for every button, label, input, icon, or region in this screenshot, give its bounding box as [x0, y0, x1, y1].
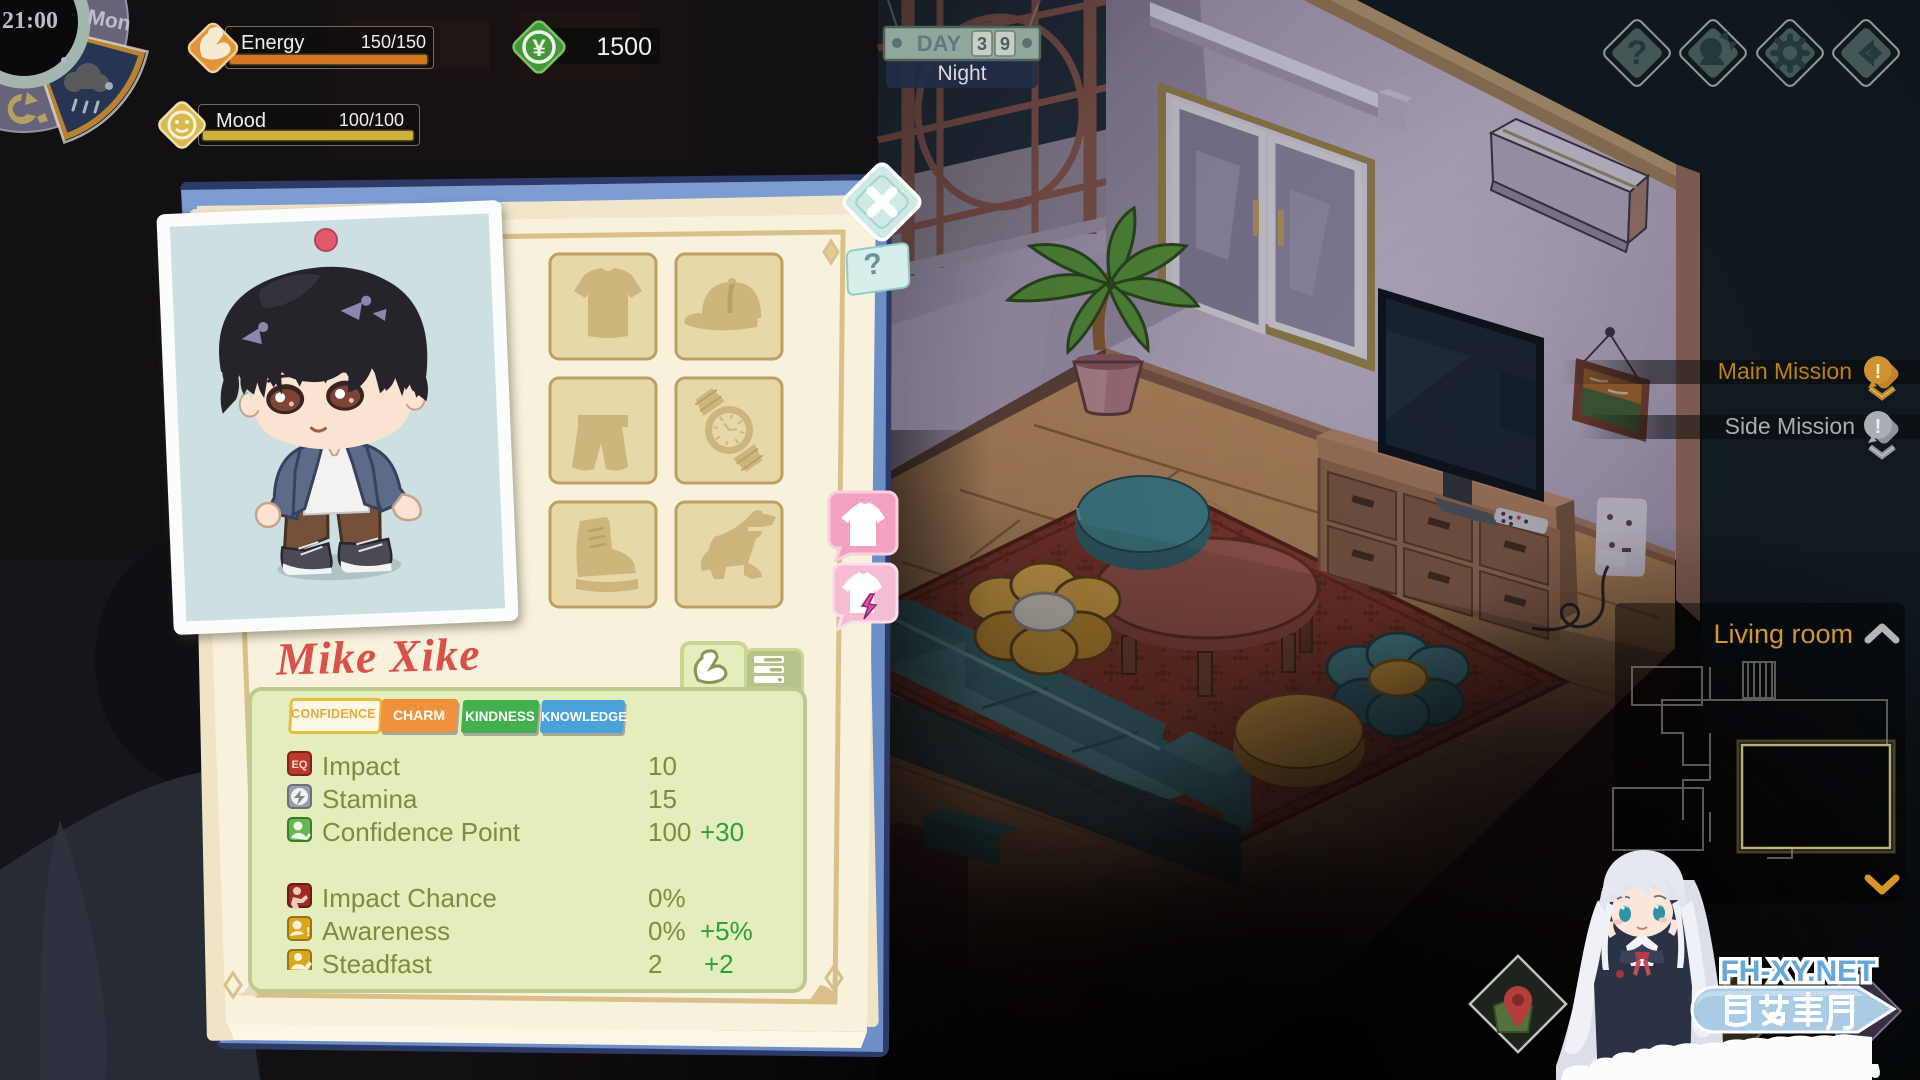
- svg-text:Main Mission: Main Mission: [1718, 358, 1852, 384]
- svg-text:Night: Night: [937, 62, 986, 85]
- svg-text:DAY: DAY: [917, 31, 962, 56]
- svg-text:21:00: 21:00: [2, 8, 58, 34]
- svg-text:Living room: Living room: [1713, 619, 1853, 649]
- svg-text:¥: ¥: [532, 35, 546, 62]
- svg-text:!: !: [306, 924, 310, 939]
- svg-text:?: ?: [1627, 34, 1648, 72]
- svg-text:!: !: [1875, 416, 1882, 438]
- svg-text:3: 3: [977, 34, 987, 54]
- svg-text:9: 9: [1000, 34, 1010, 54]
- svg-text:FH-XY.NET: FH-XY.NET: [1720, 955, 1875, 988]
- svg-text:Side Mission: Side Mission: [1725, 413, 1855, 439]
- svg-text:!: !: [1875, 361, 1882, 383]
- svg-text:EQ: EQ: [292, 759, 308, 771]
